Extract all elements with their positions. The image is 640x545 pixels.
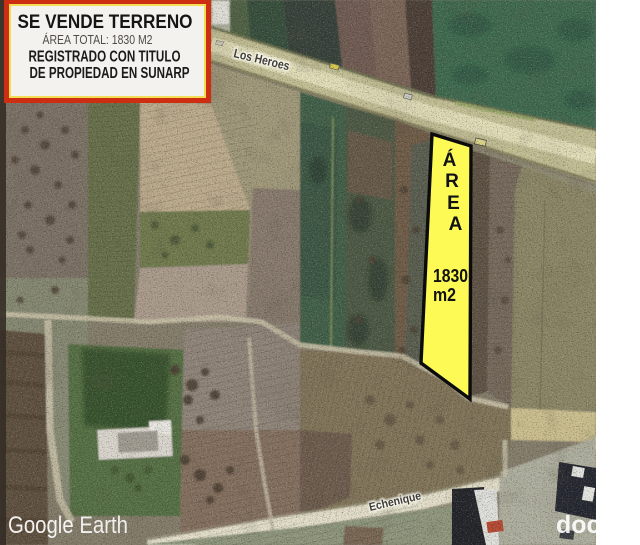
svg-text:A: A (449, 214, 463, 235)
svg-text:ÁREA TOTAL: 1830 M2: ÁREA TOTAL: 1830 M2 (43, 32, 153, 47)
svg-text:E: E (447, 193, 460, 214)
svg-text:R: R (445, 171, 459, 192)
svg-text:m2: m2 (433, 284, 456, 305)
svg-text:Google Earth: Google Earth (8, 512, 128, 539)
svg-text:DE PROPIEDAD EN SUNARP: DE PROPIEDAD EN SUNARP (30, 65, 190, 82)
svg-text:REGISTRADO CON TITULO: REGISTRADO CON TITULO (29, 49, 181, 66)
svg-text:1830: 1830 (433, 265, 468, 286)
svg-text:doc: doc (556, 511, 601, 539)
svg-text:SE VENDE TERRENO: SE VENDE TERRENO (18, 12, 193, 33)
svg-text:Á: Á (443, 149, 457, 171)
